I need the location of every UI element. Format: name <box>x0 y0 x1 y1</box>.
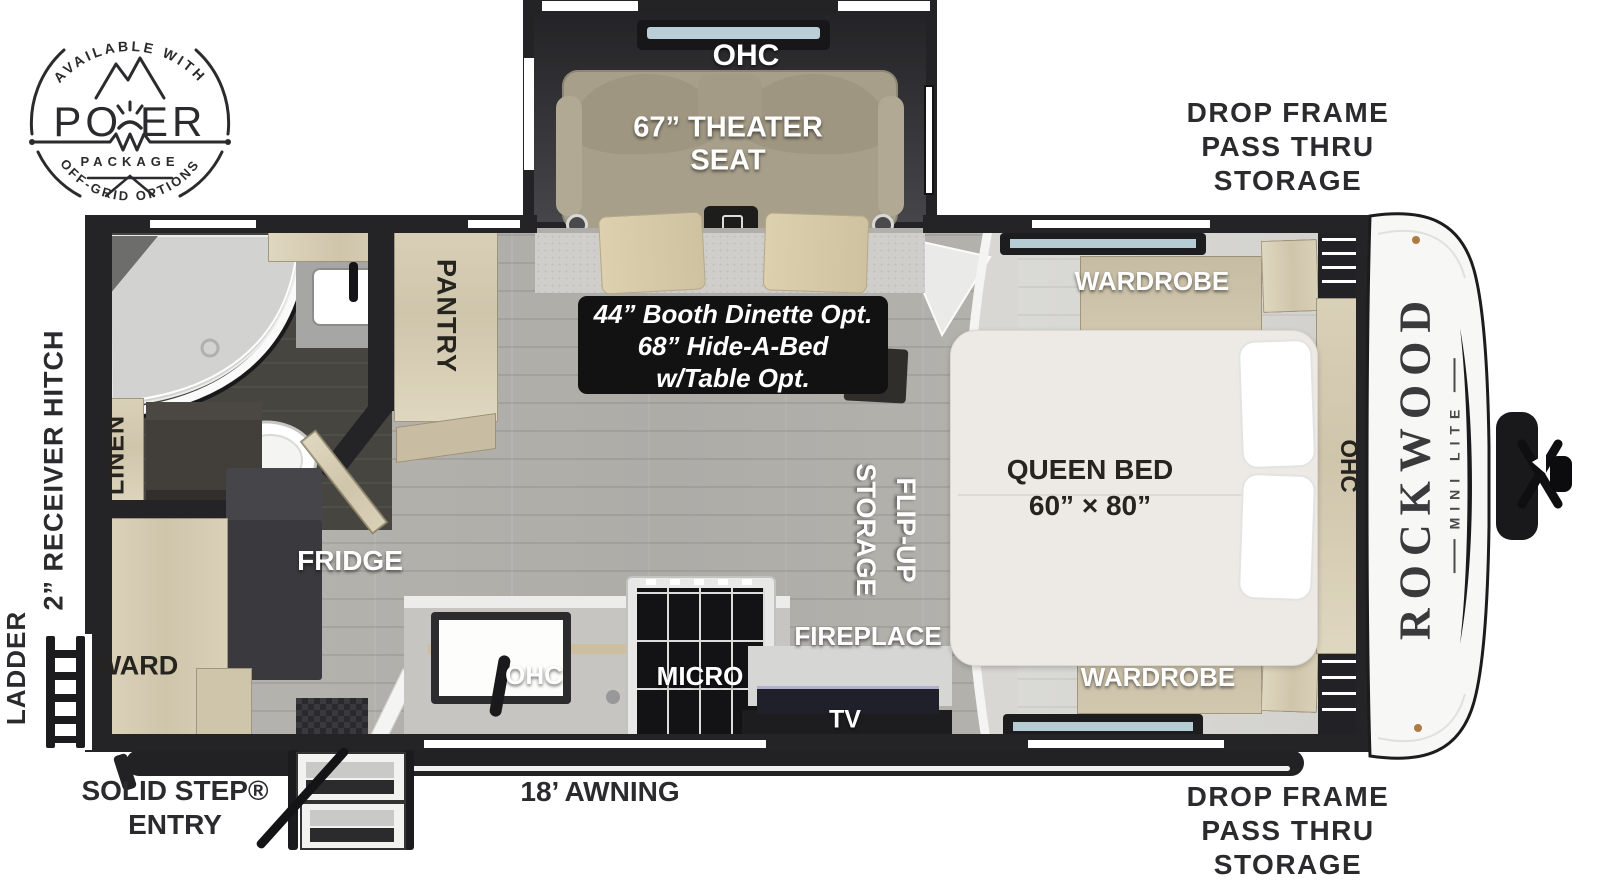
stove-knob <box>694 579 704 585</box>
label-drop-top-3: STORAGE <box>1214 167 1362 195</box>
power-package-logo: AVAILABLE WITH OFF-GRID OPTIONS PO ER PA… <box>18 6 242 220</box>
logo-power-right: ER <box>140 98 206 145</box>
closet-rod <box>1322 660 1358 663</box>
mountains-icon <box>96 58 164 98</box>
seat-armrest-left <box>556 96 582 216</box>
window-slit <box>924 85 934 195</box>
bedroom-window-top-glass <box>1010 239 1196 248</box>
propane-tank <box>1496 412 1538 540</box>
counter-knob <box>606 690 620 704</box>
option-line: 68” Hide-A-Bed <box>578 330 888 362</box>
label-fireplace: FIREPLACE <box>794 623 941 649</box>
ottoman-table <box>598 211 706 294</box>
window-slit <box>838 1 930 11</box>
awning-stripe <box>350 766 1290 771</box>
label-headboard-ohc: OHC <box>1336 439 1360 492</box>
ladder-rung <box>46 694 85 702</box>
label-wardrobe-top: WARDROBE <box>1075 268 1230 294</box>
cap-screw <box>1414 724 1422 732</box>
brand-sub: MINI LITE <box>1447 292 1463 640</box>
logo-power-left: PO <box>53 98 122 145</box>
label-linen: LINEN <box>104 415 129 495</box>
label-flip-2: STORAGE <box>846 463 886 596</box>
closet-rod <box>1322 692 1358 695</box>
hitch-coupler <box>1550 456 1572 492</box>
closet-rod <box>1322 280 1358 283</box>
stove-knob <box>646 579 656 585</box>
ottoman-table <box>763 212 870 294</box>
label-queen-2: 60” × 80” <box>1029 492 1151 520</box>
window-slit <box>542 1 638 11</box>
rv-floorplan: ROCKWOOD MINI LITE 44” Booth Dinette Opt… <box>0 0 1600 892</box>
label-drop-bottom-3: STORAGE <box>1214 851 1362 879</box>
bedroom-window-bottom-glass <box>1013 722 1193 731</box>
option-line: 44” Booth Dinette Opt. <box>578 298 888 330</box>
dash-line <box>1454 359 1456 393</box>
window-slit <box>150 220 256 228</box>
ladder-rung <box>46 672 85 680</box>
label-pantry: PANTRY <box>433 259 460 373</box>
closet-rod <box>1322 266 1358 269</box>
closet-rod <box>1322 708 1358 711</box>
entry-step-tread <box>310 810 394 826</box>
label-theater-1: 67” THEATER <box>633 114 823 143</box>
label-kitchen-ohc: OHC <box>505 662 563 688</box>
window-slit <box>424 740 766 748</box>
label-drop-bottom-2: PASS THRU <box>1201 817 1374 845</box>
option-line: w/Table Opt. <box>578 362 888 394</box>
dinette-option-box: 44” Booth Dinette Opt. 68” Hide-A-Bed w/… <box>578 296 888 394</box>
label-queen-1: QUEEN BED <box>1007 456 1173 484</box>
ladder-rung <box>46 736 85 743</box>
label-awning: 18’ AWNING <box>520 778 679 806</box>
bath-faucet <box>349 262 358 302</box>
label-slideout-ohc: OHC <box>713 41 780 71</box>
stove-knob <box>718 579 728 585</box>
label-flip-up-storage: FLIP-UP STORAGE <box>846 463 926 596</box>
slideout-window-glass <box>647 27 820 39</box>
pillow <box>1238 339 1316 470</box>
brand-name: ROCKWOOD <box>1390 292 1441 640</box>
label-ward: WARD <box>96 653 179 680</box>
closet-rod <box>1322 252 1358 255</box>
label-wardrobe-bottom: WARDROBE <box>1081 664 1236 690</box>
cap-screw <box>1412 236 1420 244</box>
closet-rod <box>1322 238 1358 241</box>
label-drop-top-2: PASS THRU <box>1201 133 1374 161</box>
label-theater-2: SEAT <box>690 147 765 176</box>
brand-sub-text: MINI LITE <box>1447 403 1463 530</box>
label-solid-step-1: SOLID STEP® <box>81 777 268 805</box>
pillow <box>1238 473 1316 602</box>
sun-icon <box>119 122 141 128</box>
label-solid-step-2: ENTRY <box>128 811 222 839</box>
label-drop-bottom-1: DROP FRAME <box>1187 783 1390 811</box>
label-fridge: FRIDGE <box>297 547 403 575</box>
bath-wall <box>368 215 394 411</box>
label-micro: MICRO <box>657 663 744 689</box>
brand-logo: ROCKWOOD MINI LITE <box>1390 292 1463 640</box>
wardrobe-box <box>1261 239 1319 313</box>
ward-step <box>196 668 252 742</box>
seat-armrest-right <box>878 96 904 216</box>
label-receiver-hitch: 2” RECEIVER HITCH <box>41 329 68 610</box>
stove-knob <box>742 579 752 585</box>
label-drop-top-1: DROP FRAME <box>1187 99 1390 127</box>
closet-rod <box>1322 676 1358 679</box>
label-flip-1: FLIP-UP <box>886 463 926 596</box>
label-tv: TV <box>829 708 861 733</box>
window-slit <box>524 58 534 170</box>
window-slit <box>468 220 520 228</box>
ladder-rung <box>46 650 85 658</box>
entry-mat <box>296 698 368 738</box>
entry-step-tread-dark <box>310 828 394 842</box>
label-ladder: LADDER <box>3 611 29 725</box>
window-slit <box>1028 740 1224 748</box>
stove-knob <box>670 579 680 585</box>
ladder-rung <box>46 716 85 724</box>
logo-package: PACKAGE <box>80 154 179 169</box>
window-slit <box>1032 220 1210 228</box>
dash-line <box>1454 539 1456 573</box>
